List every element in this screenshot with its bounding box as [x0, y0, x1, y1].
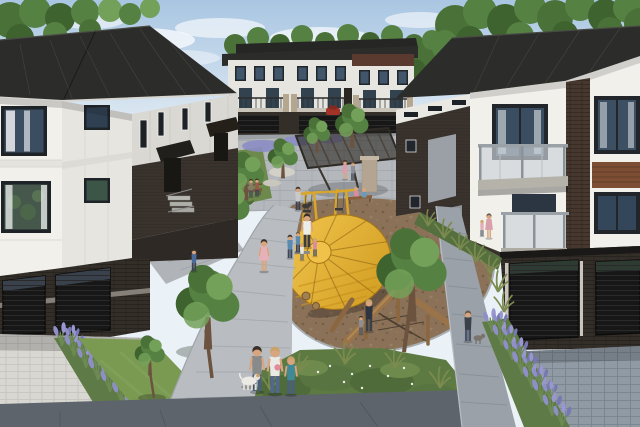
garage-door	[510, 260, 578, 340]
window	[410, 196, 420, 208]
door-trim	[580, 261, 583, 336]
window	[594, 96, 640, 154]
rendering-scene	[0, 0, 640, 427]
maroon-accent-panel	[352, 54, 414, 66]
slit-window	[140, 120, 147, 148]
slit-window	[158, 112, 164, 136]
window	[1, 181, 51, 233]
entry-door	[214, 133, 228, 161]
slit-window	[205, 102, 211, 122]
slit-window	[428, 106, 442, 111]
window	[594, 192, 640, 234]
slit-window	[404, 112, 418, 117]
architectural-rendering	[0, 0, 640, 427]
stone-pillar	[362, 158, 377, 192]
garage-door	[596, 260, 640, 335]
wing-gray-panel	[428, 134, 456, 203]
window	[1, 106, 47, 156]
slit-window	[452, 100, 466, 105]
entry-door	[164, 158, 181, 192]
window	[406, 140, 416, 152]
garage-door	[3, 276, 45, 335]
wood-accent-panel	[592, 162, 640, 188]
slit-window	[182, 108, 188, 130]
window	[84, 178, 110, 203]
